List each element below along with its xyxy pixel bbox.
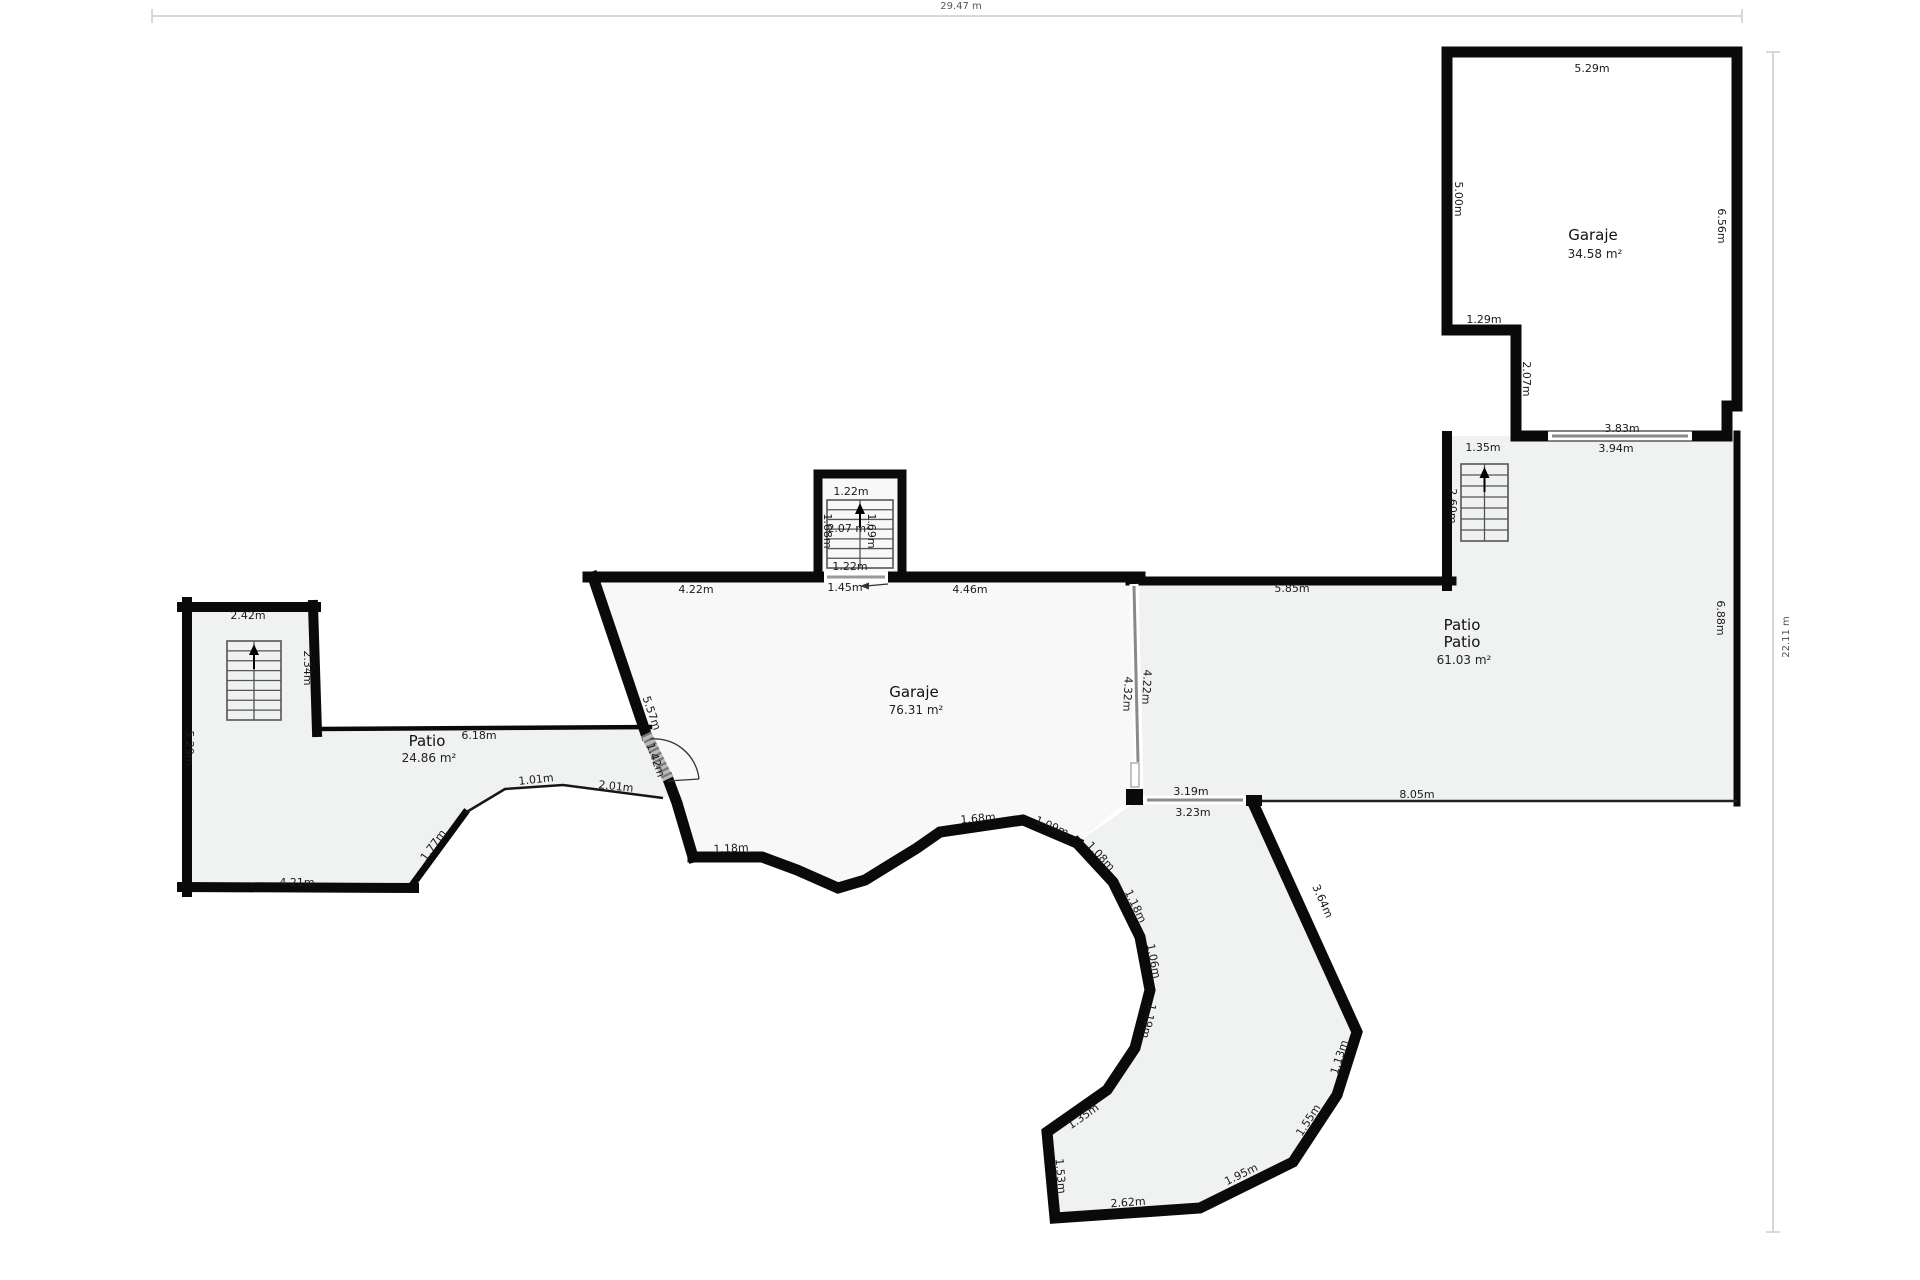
dimension-label: 8.05m [1399, 788, 1434, 801]
dimension-label: 3.23m [1175, 806, 1210, 819]
room-area: 76.31 m² [889, 703, 944, 717]
dimension-label: 5.85m [1274, 582, 1309, 595]
room-label-garaje-tr: Garaje 34.58 m² [1568, 226, 1623, 261]
room-garaje-mid-fill [593, 577, 1140, 888]
wall-post-right [1246, 795, 1262, 806]
dimension-label: 2.60m [1446, 488, 1459, 523]
dimension-label: 2.34m [301, 650, 314, 685]
top-ruler-label: 29.47 m [940, 1, 982, 12]
dimension-label: 2.07m [1520, 361, 1533, 396]
dimension-label: 6.18m [461, 729, 496, 742]
dimension-label: 3.64m [1309, 882, 1335, 919]
dimension-label: 6.56m [1715, 208, 1728, 243]
room-name: Garaje [889, 683, 939, 701]
dimension-label: 2.62m [1110, 1195, 1146, 1210]
top-ruler: 29.47 m [152, 1, 1742, 23]
room-garaje-tr-outline [1447, 52, 1737, 436]
dimension-label: 1.45m [827, 581, 862, 594]
dimension-label: 3.19m [1173, 785, 1208, 798]
dimension-label: 4.46m [952, 583, 987, 596]
dimension-label: 6.88m [1714, 600, 1727, 635]
dimension-label: 1.29m [1466, 313, 1501, 326]
dimension-label: 5.29m [1574, 62, 1609, 75]
dimension-label: 1.18m [713, 841, 749, 856]
right-ruler-label: 22.11 m [1781, 616, 1792, 658]
right-ruler: 22.11 m [1766, 52, 1792, 1232]
room-name: Patio [409, 732, 446, 750]
dimension-label: 5.00m [1452, 181, 1465, 216]
dimension-label: 1.35m [1465, 441, 1500, 454]
wall-post-left [1126, 789, 1143, 805]
dimension-label: 1.69m [865, 513, 878, 548]
dimension-label: 1.68m [821, 513, 834, 548]
room-subname: Patio [1444, 633, 1481, 651]
dimension-label: 2.01m [598, 778, 634, 795]
room-name: Patio [1444, 616, 1481, 634]
room-patio-right-fill [1134, 436, 1737, 801]
dimension-label: 4.32m [1120, 676, 1135, 712]
room-name: Garaje [1568, 226, 1618, 244]
floorplan-canvas: 29.47 m 22.11 m [0, 0, 1920, 1280]
dimension-label: 4.22m [1139, 669, 1154, 705]
room-area: 24.86 m² [402, 751, 457, 765]
dimension-label: 2.42m [230, 609, 265, 622]
dimension-label: 1.22m [832, 560, 867, 573]
dimension-label: 5.29m [183, 730, 196, 765]
room-area: 61.03 m² [1437, 653, 1492, 667]
dimension-label: 4.21m [279, 876, 314, 889]
dimension-label: 4.22m [678, 583, 713, 596]
room-label-garaje-mid: Garaje 76.31 m² [889, 683, 944, 717]
room-area: 34.58 m² [1568, 247, 1623, 261]
dimension-label: 1.22m [833, 485, 868, 498]
dimension-label: 3.83m [1604, 422, 1639, 435]
dimension-label: 3.94m [1598, 442, 1633, 455]
